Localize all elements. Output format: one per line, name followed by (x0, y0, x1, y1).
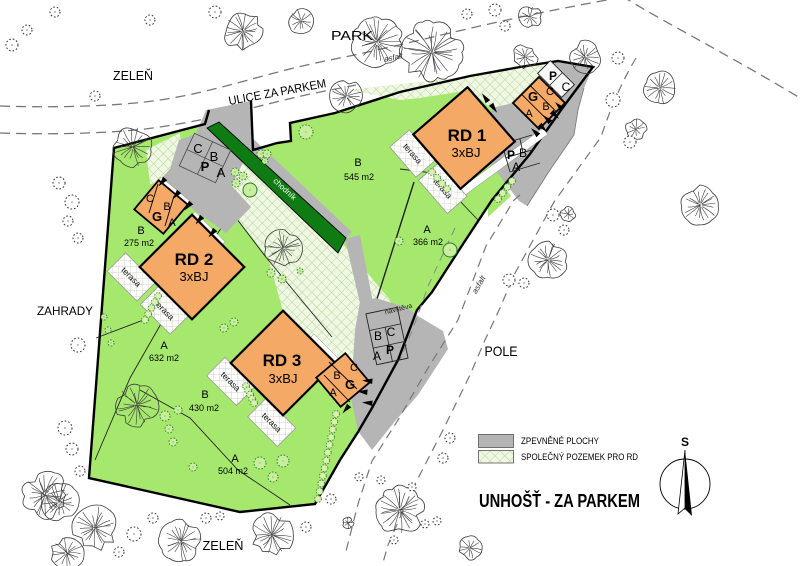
svg-text:G: G (152, 209, 162, 224)
svg-text:C: C (350, 362, 358, 374)
svg-text:ZPEVNĚNÉ PLOCHY: ZPEVNĚNÉ PLOCHY (521, 436, 600, 447)
svg-text:A: A (423, 224, 431, 236)
svg-text:C: C (193, 141, 202, 156)
svg-text:A: A (512, 160, 520, 174)
svg-text:C: C (146, 193, 154, 205)
svg-text:B: B (137, 225, 144, 237)
svg-text:ZELEŇ: ZELEŇ (203, 538, 244, 553)
svg-text:S: S (681, 435, 689, 449)
svg-text:B: B (542, 101, 549, 113)
svg-text:3xBJ: 3xBJ (180, 269, 209, 284)
svg-text:366 m2: 366 m2 (413, 237, 443, 247)
svg-text:ZELEŇ: ZELEŇ (113, 68, 153, 83)
svg-text:P: P (549, 69, 557, 83)
svg-text:A: A (329, 387, 337, 399)
svg-text:632 m2: 632 m2 (149, 353, 179, 363)
svg-text:P: P (386, 343, 394, 357)
svg-text:A: A (168, 217, 176, 229)
svg-text:430 m2: 430 m2 (189, 403, 219, 413)
svg-text:C: C (562, 80, 571, 94)
svg-text:POLE: POLE (485, 343, 518, 359)
svg-text:UNHOŠŤ - ZA PARKEM: UNHOŠŤ - ZA PARKEM (479, 490, 640, 511)
svg-text:A: A (231, 453, 239, 465)
svg-text:3xBJ: 3xBJ (269, 371, 298, 386)
svg-text:RD 3: RD 3 (263, 351, 302, 370)
svg-text:B: B (333, 370, 340, 382)
svg-text:3xBJ: 3xBJ (452, 145, 481, 160)
svg-text:ZAHRADY: ZAHRADY (37, 304, 93, 318)
svg-text:G: G (345, 377, 355, 392)
svg-text:B: B (354, 157, 361, 169)
svg-text:B: B (519, 146, 527, 160)
svg-text:PARK: PARK (331, 28, 373, 43)
svg-text:B: B (201, 389, 208, 401)
svg-text:B: B (374, 329, 382, 343)
svg-text:504 m2: 504 m2 (218, 466, 248, 476)
svg-text:C: C (387, 325, 396, 339)
svg-text:B: B (163, 201, 170, 213)
svg-text:A: A (160, 340, 168, 352)
svg-text:275 m2: 275 m2 (124, 238, 154, 248)
svg-text:A: A (373, 349, 381, 363)
svg-text:RD 1: RD 1 (448, 126, 487, 145)
svg-text:A: A (217, 165, 226, 180)
svg-text:RD 2: RD 2 (175, 250, 214, 269)
svg-text:B: B (210, 149, 219, 164)
svg-text:P: P (201, 159, 210, 174)
svg-text:C: C (546, 86, 554, 98)
svg-text:545 m2: 545 m2 (344, 172, 374, 182)
svg-text:G: G (528, 89, 538, 104)
svg-text:A: A (525, 108, 533, 120)
svg-text:SPOLEČNÝ POZEMEK PRO RD: SPOLEČNÝ POZEMEK PRO RD (521, 452, 638, 463)
